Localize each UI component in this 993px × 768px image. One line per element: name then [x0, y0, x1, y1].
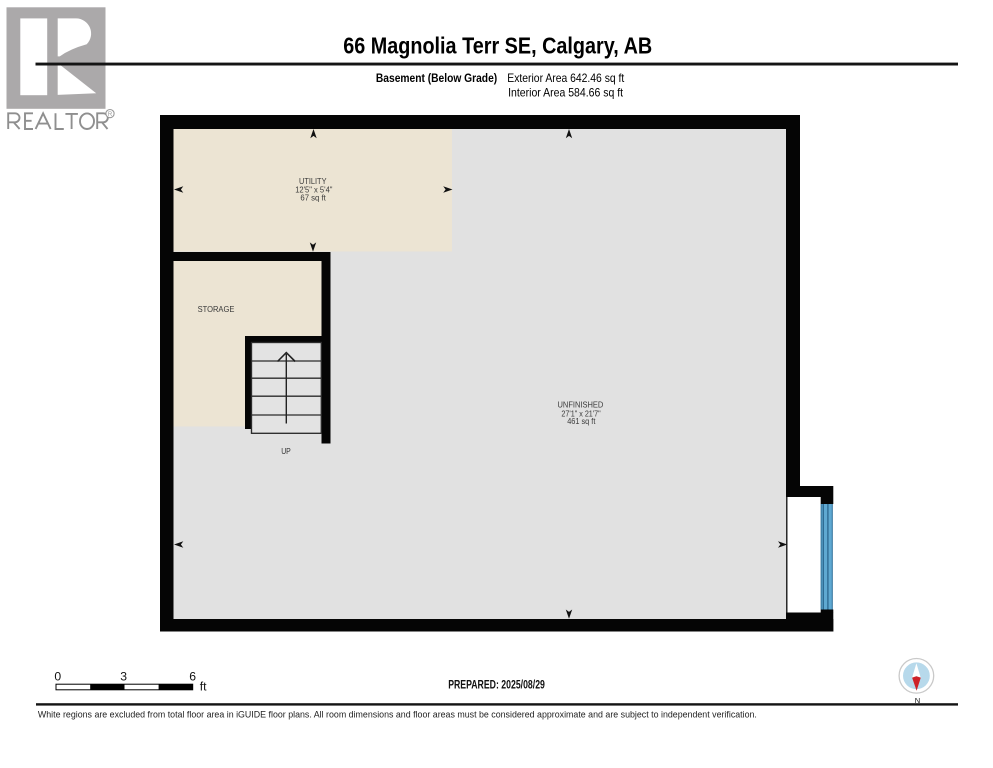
- svg-text:White regions are excluded fro: White regions are excluded from total fl…: [38, 710, 757, 720]
- svg-text:UP: UP: [281, 447, 291, 456]
- svg-text:Exterior Area 642.46 sq ft: Exterior Area 642.46 sq ft: [507, 71, 625, 85]
- svg-text:0: 0: [54, 669, 61, 683]
- svg-text:461 sq ft: 461 sq ft: [567, 417, 596, 426]
- svg-text:R: R: [108, 112, 113, 118]
- svg-text:Interior Area 584.66 sq ft: Interior Area 584.66 sq ft: [508, 86, 624, 100]
- svg-text:PREPARED: 2025/08/29: PREPARED: 2025/08/29: [448, 678, 545, 692]
- svg-text:67 sq ft: 67 sq ft: [300, 193, 326, 202]
- svg-text:UNFINISHED: UNFINISHED: [558, 400, 604, 409]
- svg-text:3: 3: [120, 669, 127, 683]
- svg-text:66 Magnolia Terr SE, Calgary,: 66 Magnolia Terr SE, Calgary, AB: [343, 33, 652, 59]
- svg-text:Basement (Below Grade): Basement (Below Grade): [376, 71, 497, 85]
- svg-text:6: 6: [189, 669, 196, 683]
- svg-text:ft: ft: [200, 680, 207, 694]
- svg-text:STORAGE: STORAGE: [198, 305, 235, 314]
- svg-text:UTILITY: UTILITY: [299, 177, 327, 186]
